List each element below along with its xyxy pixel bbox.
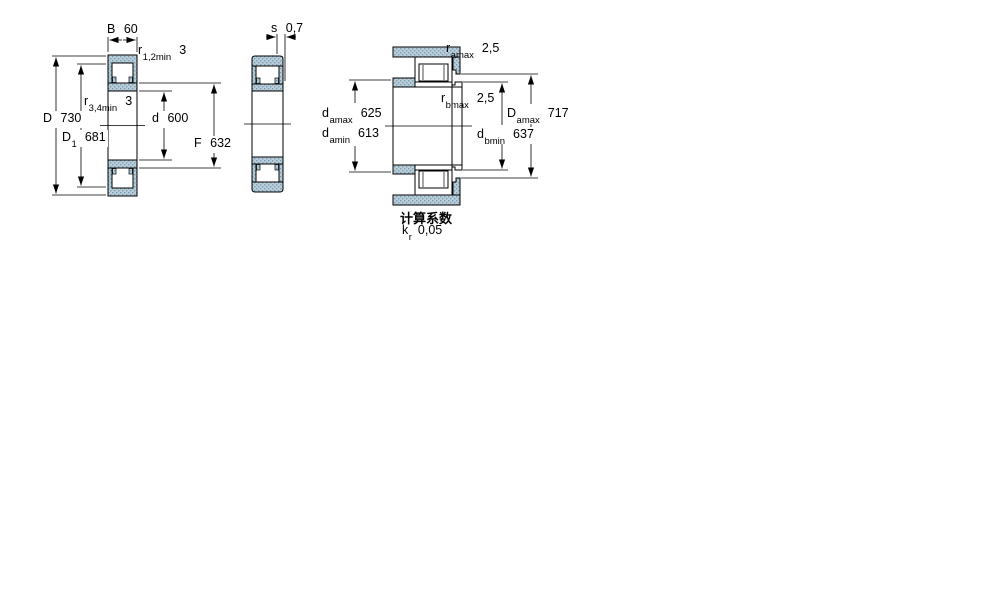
- cage-bottom-left: [113, 169, 117, 175]
- dim-label-damax: damax625: [320, 106, 384, 123]
- cage-top-left: [113, 77, 117, 83]
- shaft-shoulder-bottom: [393, 165, 415, 174]
- dim-label-r12min: r1,2min3: [138, 43, 186, 60]
- inner-ring-top: [108, 83, 137, 91]
- housing-bottom: [393, 195, 460, 205]
- outer-ring-band-top: [252, 56, 283, 66]
- shaft-shoulder-top: [393, 78, 415, 87]
- outer-ring-band-bottom: [252, 182, 283, 192]
- cage-top-left: [257, 78, 261, 84]
- dim-label-dbmin: dbmin637: [475, 127, 536, 144]
- dim-label-D: D730: [41, 111, 83, 128]
- dim-label-F: F632: [192, 136, 233, 153]
- dim-label-B: B60: [107, 22, 138, 39]
- side-view-figure: [244, 34, 296, 192]
- inner-ring-top: [415, 82, 452, 87]
- dim-label-s: s0,7: [271, 21, 303, 38]
- cage-bottom-right: [275, 165, 279, 171]
- inner-ring-bottom: [108, 160, 137, 168]
- bearing-drawing-page: B60 r1,2min3 r3,4min3 D730 D1681 d600 F6…: [0, 0, 1000, 600]
- bearing-diagram-canvas: [0, 0, 1000, 600]
- flange-bottom-left: [252, 164, 256, 182]
- cage-bottom-left: [257, 165, 261, 171]
- flange-top-right: [279, 66, 283, 84]
- dim-label-rbmax: rbmax2,5: [441, 91, 494, 108]
- dim-Da-lines: [461, 74, 538, 178]
- dim-label-ramax: ramax2,5: [446, 41, 499, 58]
- dim-label-d: d600: [150, 111, 190, 128]
- dim-label-D1: D1681: [60, 130, 108, 147]
- factor-kr: kr0,05: [402, 223, 442, 240]
- inner-ring-bottom: [252, 157, 283, 164]
- inner-ring-bottom: [415, 165, 452, 170]
- cage-bottom-right: [129, 169, 133, 175]
- dim-B-lines: [108, 37, 137, 52]
- cage-top-right: [129, 77, 133, 83]
- flange-top-left: [252, 66, 256, 84]
- dim-label-Damax: Damax717: [505, 106, 571, 123]
- housing-shoulder-bottom: [453, 178, 460, 195]
- inner-ring-top: [252, 84, 283, 91]
- flange-bottom-right: [279, 164, 283, 182]
- cage-top-right: [275, 78, 279, 84]
- dim-label-r34min: r3,4min3: [84, 94, 132, 111]
- dim-label-damin: damin613: [320, 126, 381, 143]
